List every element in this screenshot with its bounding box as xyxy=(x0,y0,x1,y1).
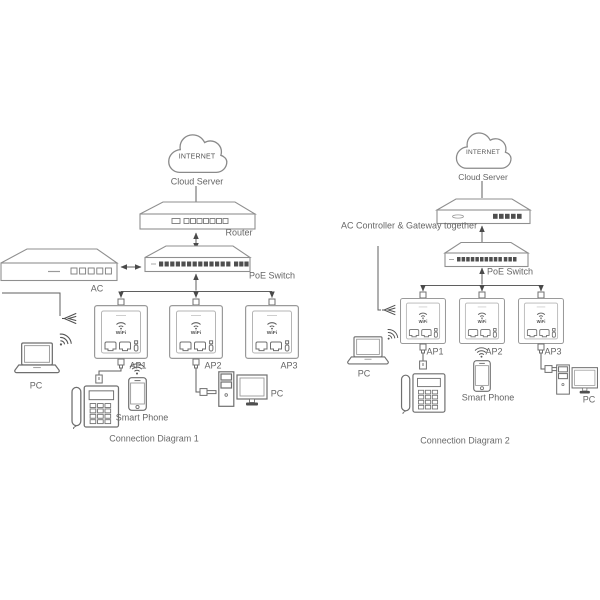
internet-label-1: INTERNET xyxy=(179,154,216,161)
laptop-pc-icon xyxy=(15,343,59,373)
ac-label: AC xyxy=(91,285,104,294)
smart-phone-label-2: Smart Phone xyxy=(462,394,515,403)
laptop-pc-label-1: PC xyxy=(30,382,43,391)
antenna-icon-2 xyxy=(382,305,395,315)
diagram1-title: Connection Diagram 1 xyxy=(109,435,199,444)
ap1-wifi-label-2: WiFi xyxy=(419,320,428,324)
ap3-label: AP3 xyxy=(280,362,297,371)
network-diagram-page: INTERNET Cloud Server Router PoE Switch … xyxy=(0,0,600,600)
diagram-canvas xyxy=(0,0,600,600)
gateway-wireless-line xyxy=(378,246,381,310)
smartphone-icon-2 xyxy=(474,361,491,392)
ap3-wifi-label-2: WiFi xyxy=(537,320,546,324)
router-device xyxy=(140,202,255,229)
laptop-wifi-icon xyxy=(55,332,74,350)
desktop-pc-icon-2 xyxy=(557,365,598,394)
ap-top-connectors-2 xyxy=(420,292,544,298)
router-label: Router xyxy=(225,229,252,238)
laptop-pc-label-2: PC xyxy=(358,370,371,379)
ap3-wifi-label: WiFi xyxy=(267,331,277,336)
poe-switch-label-2: PoE Switch xyxy=(487,268,533,277)
laptop-pc-icon-2 xyxy=(348,337,389,364)
diagram2-title: Connection Diagram 2 xyxy=(420,437,510,446)
antenna-icon xyxy=(62,313,76,323)
cloud-server-label-2: Cloud Server xyxy=(458,173,508,182)
ac-device xyxy=(1,249,117,281)
cloud-server-label-1: Cloud Server xyxy=(171,178,224,187)
ap1-phone-cable xyxy=(99,368,121,375)
ap3-label-2: AP3 xyxy=(544,348,561,357)
desk-phone-icon xyxy=(72,386,118,429)
ap1-label: AP1 xyxy=(129,362,146,371)
ac-gateway-label: AC Controller & Gateway together xyxy=(341,222,477,231)
ap2-pc-cable xyxy=(196,368,200,392)
desktop-pc-label-2: PC xyxy=(583,396,596,405)
smart-phone-label-1: Smart Phone xyxy=(116,414,169,423)
internet-label-2: INTERNET xyxy=(466,150,500,157)
ac-wireless-line xyxy=(2,293,60,316)
desktop-pc-icon xyxy=(219,372,267,407)
desk-phone-icon-2 xyxy=(402,374,445,414)
desktop-pc-label-1: PC xyxy=(271,390,284,399)
ap2-label-2: AP2 xyxy=(485,348,502,357)
ap1-wifi-label: WiFi xyxy=(116,331,126,336)
ap2-wifi-label: WiFi xyxy=(191,331,201,336)
poe-switch-label-1: PoE Switch xyxy=(249,272,295,281)
poe-switch-device-2 xyxy=(445,243,528,267)
poe-switch-device xyxy=(145,246,250,272)
laptop-wifi-icon-2 xyxy=(383,327,400,343)
ap1-label-2: AP1 xyxy=(426,348,443,357)
ap2-wifi-label-2: WiFi xyxy=(478,320,487,324)
ap-top-connectors-1 xyxy=(118,299,275,305)
ap2-label: AP2 xyxy=(204,362,221,371)
smartphone-icon xyxy=(129,378,147,411)
